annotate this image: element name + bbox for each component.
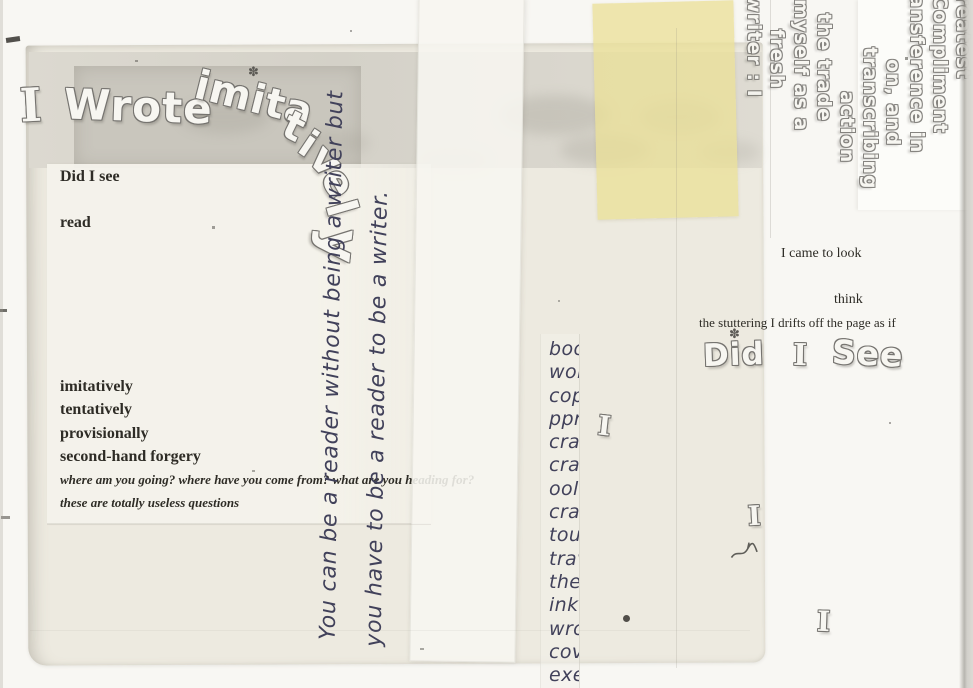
paper-crease: [770, 0, 771, 238]
fragment-word: bool: [549, 338, 580, 361]
scattered-bubble-i: I: [816, 605, 831, 638]
rotated-line: the trade: [812, 0, 835, 235]
scattered-bubble-i: I: [596, 410, 613, 442]
fragment-word: ppr: [549, 408, 580, 431]
rotated-bubble-lines: reatest Compliment ansference in on, and…: [742, 0, 973, 235]
ink-speck: [6, 36, 21, 43]
fragment-list: bool wor copy ppr crav cran ool crac tou…: [549, 338, 580, 687]
ink-speck: [558, 300, 560, 302]
fragment-word: exer: [549, 664, 580, 687]
rotated-line: ansference in: [904, 0, 927, 235]
fragment-word: trav: [549, 548, 580, 571]
handwriting-line: you have to be a reader to be a writer.: [351, 0, 406, 655]
paper-crease: [30, 630, 750, 631]
rotated-line: transcribing: [858, 0, 881, 235]
fragment-word: crav: [549, 431, 580, 454]
rotated-line: Compliment: [928, 0, 951, 235]
doodle-star: ✽: [248, 64, 259, 80]
ink-speck: [135, 60, 138, 62]
poem-line-think: think: [834, 292, 863, 308]
fragment-word: ool: [549, 478, 580, 501]
ink-speck: [350, 30, 352, 32]
poem-line-i-came-to-look: I came to look: [781, 246, 861, 262]
doodle-star: ✽: [729, 326, 740, 342]
ink-speck: [889, 422, 891, 424]
ink-squiggle: [727, 538, 765, 566]
fragment-word: the: [549, 571, 580, 594]
rotated-line: fresh: [765, 0, 788, 235]
rotated-line: writer : I: [742, 0, 765, 235]
rotated-line: myself as a: [788, 0, 811, 235]
ink-speck: [623, 615, 630, 622]
fragment-word: wor: [549, 361, 580, 384]
ink-speck: [252, 470, 255, 472]
fragment-word: cov: [549, 641, 580, 664]
cut-off-handwriting-strip: bool wor copy ppr crav cran ool crac tou…: [540, 334, 580, 688]
scan-edge-left: [0, 0, 3, 688]
paper-crease: [676, 28, 677, 668]
fragment-word: copy: [549, 385, 580, 408]
rotated-bubble-text-block: reatest Compliment ansference in on, and…: [742, 0, 973, 236]
paper-crease: [47, 524, 431, 525]
poem-line-did-i-see: Did I see: [60, 168, 120, 186]
scattered-bubble-i: I: [747, 501, 762, 533]
ink-speck: [420, 648, 424, 650]
poem-line-read: read: [60, 214, 91, 232]
ink-speck: [212, 226, 215, 229]
fragment-word: crac: [549, 501, 580, 524]
fragment-word: touc: [549, 524, 580, 547]
yellow-sticky-note: [592, 0, 738, 219]
arc-letter: I: [19, 77, 44, 132]
rotated-line: action: [835, 0, 858, 235]
bubble-word: See: [831, 332, 904, 375]
ink-speck: [905, 57, 908, 60]
vertical-handwriting-strip: You can be a reader without being a writ…: [409, 0, 524, 663]
rotated-line: on, and: [881, 0, 904, 235]
rotated-handwriting: You can be a reader without being a writ…: [305, 0, 420, 655]
bubble-word: I: [792, 338, 808, 373]
fragment-word: ink: [549, 594, 580, 617]
scan-edge-right: [959, 0, 973, 688]
fragment-word: cran: [549, 454, 580, 477]
